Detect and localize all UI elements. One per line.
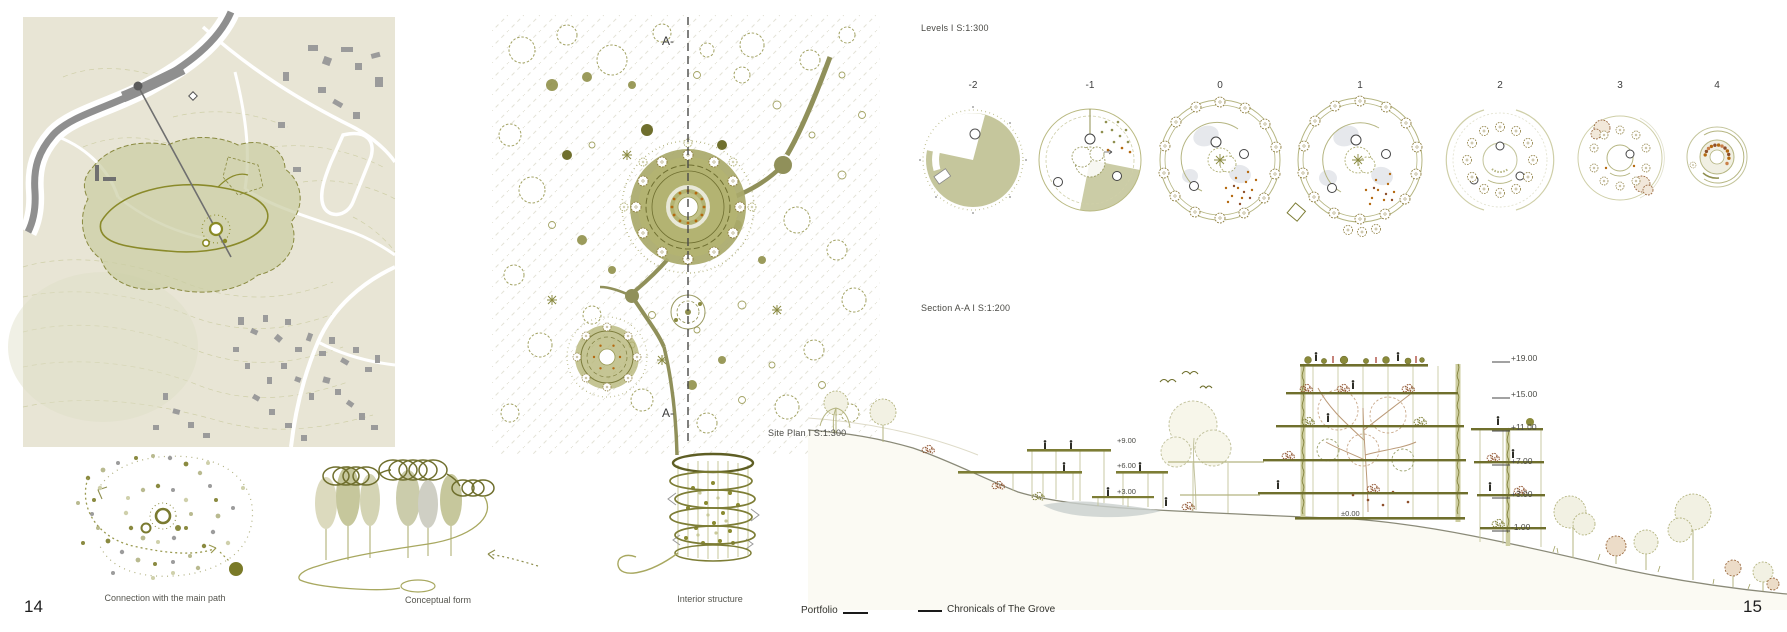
elevation-label-7: +7.00	[1511, 456, 1533, 466]
elevation-label-left-3: +3.00	[1117, 487, 1136, 496]
elevation-label-left-9: +9.00	[1117, 436, 1136, 445]
level-label-3: 3	[1617, 80, 1623, 91]
connection-diagram	[58, 448, 273, 596]
conceptual-form-diagram	[288, 448, 553, 603]
levels-title: Levels I S:1:300	[921, 23, 989, 33]
connection-caption: Connection with the main path	[104, 593, 225, 603]
footer-project-label: Chronicals of The Grove	[947, 604, 1055, 615]
level-plan-minus1	[1039, 109, 1141, 211]
level-label-minus1: -1	[1086, 80, 1095, 91]
portfolio-spread: A- A- Site Plan I S:1:300 Connection wit…	[0, 0, 1787, 632]
elevation-label-minus1: -1.00	[1511, 522, 1530, 532]
level-plan-1	[1287, 96, 1422, 237]
footer-rule-right	[918, 610, 942, 612]
footer-rule-left	[843, 612, 868, 614]
interior-structure-diagram	[618, 443, 798, 605]
footer-portfolio-label: Portfolio	[801, 605, 838, 616]
level-label-0: 0	[1217, 80, 1223, 91]
page-number-left: 14	[24, 597, 43, 617]
level-plans-drawing	[900, 93, 1787, 233]
conceptual-form-caption: Conceptual form	[405, 595, 471, 605]
interior-structure-caption: Interior structure	[677, 594, 743, 604]
level-plan-4	[1687, 127, 1747, 187]
level-plan-0	[1159, 97, 1281, 223]
level-plan-3	[1578, 116, 1664, 200]
spiral-coils	[670, 454, 755, 561]
section-center-tree	[1161, 401, 1231, 510]
section-drawing	[808, 300, 1787, 610]
level-plan-2	[1446, 110, 1553, 210]
elevation-label-15: +15.00	[1511, 389, 1537, 399]
section-title: Section A-A I S:1:200	[921, 303, 1010, 313]
elevation-label-3: +3.00	[1511, 489, 1533, 499]
ground-level-label: ±0.00	[1341, 509, 1360, 518]
birds-icon	[1160, 372, 1212, 389]
section-tower	[1258, 356, 1468, 522]
elevation-label-19: +19.00	[1511, 353, 1537, 363]
location-map-drawing	[23, 17, 395, 447]
site-plan-caption: Site Plan I S:1:300	[768, 428, 846, 438]
page-number-right: 15	[1743, 597, 1762, 617]
level-label-1: 1	[1357, 80, 1363, 91]
section-marker-bottom: A-	[662, 406, 674, 420]
level-plan-minus2	[919, 106, 1027, 214]
level-label-minus2: -2	[969, 80, 978, 91]
people-figures	[1044, 352, 1515, 506]
level-label-4: 4	[1714, 80, 1720, 91]
elevation-label-11: +11.00	[1511, 422, 1537, 432]
section-marker-top: A-	[662, 34, 674, 48]
elevation-label-left-6: +6.00	[1117, 461, 1136, 470]
level-label-2: 2	[1497, 80, 1503, 91]
section-terraces	[1471, 418, 1546, 547]
